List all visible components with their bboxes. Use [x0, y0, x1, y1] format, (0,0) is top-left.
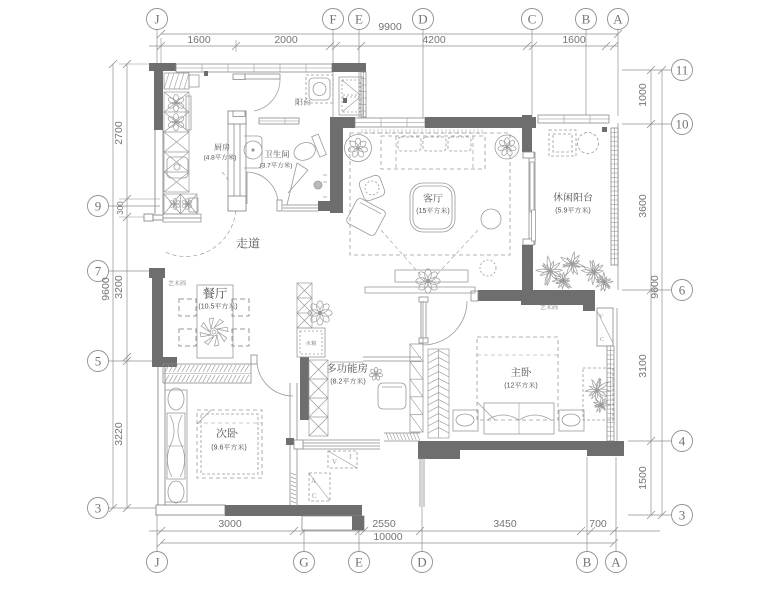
svg-text:V: V — [332, 458, 337, 466]
svg-text:): ) — [535, 382, 537, 389]
svg-text:4200: 4200 — [422, 34, 446, 46]
svg-text:V: V — [599, 314, 604, 320]
svg-text:(9.6: (9.6 — [211, 444, 223, 451]
svg-text:): ) — [363, 378, 365, 385]
svg-text:2700: 2700 — [113, 121, 125, 145]
svg-text:10: 10 — [676, 117, 689, 132]
svg-text:(12: (12 — [504, 382, 514, 389]
svg-text:J: J — [154, 555, 159, 570]
svg-text:(15: (15 — [416, 208, 426, 215]
svg-text:): ) — [290, 162, 292, 169]
svg-text:9900: 9900 — [378, 21, 402, 33]
svg-text:1000: 1000 — [637, 83, 649, 107]
svg-text:2000: 2000 — [274, 34, 298, 46]
svg-text:5: 5 — [95, 354, 102, 369]
svg-text:): ) — [235, 303, 237, 310]
svg-text:11: 11 — [676, 63, 689, 78]
svg-text:G: G — [299, 555, 308, 570]
svg-text:6: 6 — [679, 283, 686, 298]
svg-text:A: A — [613, 12, 623, 27]
svg-text:2550: 2550 — [372, 518, 396, 530]
svg-text:3100: 3100 — [637, 354, 649, 378]
svg-text:3600: 3600 — [637, 194, 649, 218]
svg-text:A: A — [311, 477, 316, 485]
svg-text:1600: 1600 — [187, 34, 211, 46]
svg-text:C: C — [312, 492, 317, 500]
svg-text:700: 700 — [589, 518, 607, 530]
svg-text:C: C — [528, 12, 537, 27]
svg-text:300: 300 — [116, 201, 125, 215]
svg-text:A: A — [611, 555, 621, 570]
svg-text:(4.8: (4.8 — [204, 154, 216, 161]
svg-text:C: C — [600, 337, 604, 343]
svg-text:E: E — [355, 12, 363, 27]
svg-text:(10.5: (10.5 — [198, 303, 214, 310]
svg-text:3450: 3450 — [493, 518, 517, 530]
svg-text:F: F — [329, 12, 336, 27]
svg-text:B: B — [583, 555, 592, 570]
svg-text:): ) — [244, 444, 246, 451]
svg-text:J: J — [349, 453, 352, 461]
svg-text:3: 3 — [679, 508, 686, 523]
svg-text:1500: 1500 — [637, 466, 649, 490]
svg-text:(5.9: (5.9 — [555, 207, 567, 214]
svg-text:B: B — [582, 12, 591, 27]
svg-text:D: D — [417, 555, 426, 570]
svg-text:3220: 3220 — [113, 422, 125, 446]
svg-text:1600: 1600 — [562, 34, 586, 46]
svg-text:J: J — [154, 12, 159, 27]
svg-text:9600: 9600 — [100, 277, 112, 301]
svg-text:D: D — [418, 12, 427, 27]
svg-text:9: 9 — [95, 199, 102, 214]
svg-text:E: E — [355, 555, 363, 570]
svg-text:): ) — [588, 207, 590, 214]
svg-text:3: 3 — [95, 501, 102, 516]
svg-text:): ) — [447, 208, 449, 215]
svg-text:3000: 3000 — [218, 518, 242, 530]
svg-text:(8.2: (8.2 — [330, 378, 342, 385]
svg-text:10000: 10000 — [373, 531, 402, 543]
svg-text:4: 4 — [679, 434, 686, 449]
svg-text:): ) — [234, 154, 236, 161]
svg-text:3200: 3200 — [113, 275, 125, 299]
svg-text:7: 7 — [95, 264, 102, 279]
